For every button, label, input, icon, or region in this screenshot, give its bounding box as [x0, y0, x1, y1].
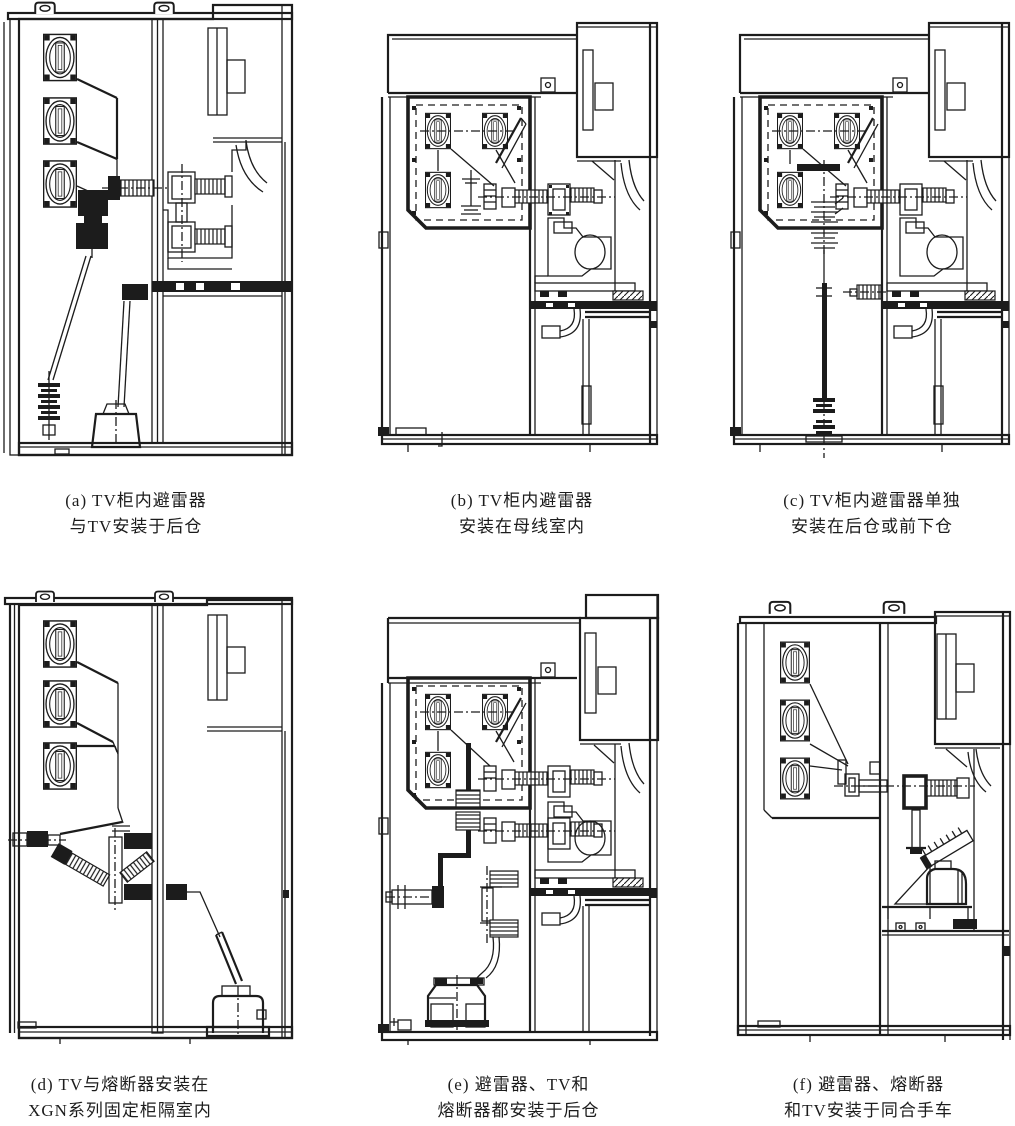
voltage-transformer-icon: [92, 400, 140, 447]
cabinet-frame: [738, 602, 1010, 1040]
voltage-transformer-icon: [895, 861, 966, 904]
caption-a-line2: 与TV安装于后仓: [0, 514, 272, 540]
cable-compartment: [382, 309, 657, 452]
caption-b-line2: 安装在母线室内: [380, 514, 664, 540]
cabinet-frame: [378, 595, 658, 1036]
figure-a: [0, 0, 345, 470]
figure-d: [0, 590, 310, 1050]
contact-assembly-upper: [478, 766, 615, 797]
breaker-mechanism: [76, 140, 292, 300]
circuit-breaker: [882, 97, 1009, 435]
lifting-lug-icon: [36, 592, 54, 603]
lifting-lug-icon: [154, 3, 174, 14]
arrester-feeder: [806, 160, 888, 458]
bushing-icon: [777, 172, 802, 207]
caption-d-line1: (d) TV与熔断器安装在: [0, 1072, 240, 1098]
caption-c-line2: 安装在后仓或前下仓: [730, 514, 1014, 540]
busbar-compartment: [408, 97, 530, 228]
figure-c: [730, 20, 1015, 465]
cable-termination: [187, 892, 269, 1036]
contact-assembly: [478, 184, 615, 215]
handcart-platform: [882, 907, 1009, 935]
contact-box: [904, 776, 926, 808]
caption-e-line1: (e) 避雷器、TV和: [380, 1072, 657, 1098]
conductor-bar: [822, 283, 827, 398]
circuit-breaker: [530, 97, 657, 435]
circuit-breaker: [530, 678, 657, 1032]
caption-c: (c) TV柜内避雷器单独 安装在后仓或前下仓: [730, 488, 1014, 540]
lifting-lug-icon: [155, 592, 173, 603]
cabinet-drawing-c: [730, 20, 1015, 460]
compartment-floor: [152, 281, 292, 292]
busbar-compartment: [760, 97, 882, 228]
diagram-page: (a) TV柜内避雷器 与TV安装于后仓 (b) TV柜内避雷器 安装在母线室内…: [0, 0, 1015, 1126]
bushing-icon: [425, 752, 450, 787]
bushings-group: [44, 34, 117, 207]
bushing-icon: [781, 758, 810, 799]
figure-f: [730, 594, 1015, 1051]
lifting-lug-icon: [35, 3, 55, 14]
bushing-icon: [44, 681, 77, 727]
caption-b: (b) TV柜内避雷器 安装在母线室内: [380, 488, 664, 540]
bushing-icon: [425, 172, 450, 207]
instrument-compartment: [929, 23, 1009, 157]
voltage-transformer-icon: [425, 975, 489, 1030]
caption-f-line1: (f) 避雷器、熔断器: [730, 1072, 1007, 1098]
caption-d-line2: XGN系列固定柜隔室内: [0, 1098, 240, 1124]
lifting-lug-icon: [770, 602, 791, 614]
tv-spout-icon: [78, 190, 108, 216]
cable-compartment: [382, 896, 657, 1045]
fuse-link-icon: [120, 852, 154, 882]
caption-c-line1: (c) TV柜内避雷器单独: [730, 488, 1014, 514]
lifting-lug-icon: [884, 602, 905, 614]
surge-arrester-icon: [38, 371, 60, 440]
bushing-icon: [781, 642, 810, 683]
bushing-icon: [44, 161, 77, 207]
caption-f: (f) 避雷器、熔断器 和TV安装于同合手车: [730, 1072, 1007, 1124]
caption-d: (d) TV与熔断器安装在 XGN系列固定柜隔室内: [0, 1072, 240, 1124]
cabinet-drawing-f: [730, 594, 1015, 1046]
bushing-icon: [44, 621, 77, 667]
cabinet-drawing-b: [378, 20, 663, 460]
fuse-icon: [51, 843, 111, 887]
figure-b: [378, 20, 663, 465]
cabinet-drawing-e: [378, 590, 663, 1045]
contact-assembly-lower: [478, 818, 615, 849]
cabinet-drawing-a: [0, 0, 345, 465]
bushing-icon: [44, 743, 77, 789]
instrument-compartment: [580, 618, 658, 740]
cable-compartment: [734, 309, 1009, 452]
duct-curve: [236, 145, 263, 192]
contact-assembly: [830, 184, 967, 215]
cabinet-drawing-d: [0, 590, 310, 1045]
base: [738, 1021, 1010, 1042]
caption-b-line1: (b) TV柜内避雷器: [380, 488, 664, 514]
tv-fuse-mechanism: [8, 808, 187, 912]
bushing-icon: [781, 700, 810, 741]
caption-e-line2: 熔断器都安装于后仓: [380, 1098, 657, 1124]
breaker-body: [548, 218, 611, 276]
caption-e: (e) 避雷器、TV和 熔断器都安装于后仓: [380, 1072, 657, 1124]
instrument-compartment: [577, 23, 657, 157]
bushings-group: [44, 621, 118, 808]
figure-e: [378, 590, 663, 1050]
caption-a-line1: (a) TV柜内避雷器: [0, 488, 272, 514]
caption-a: (a) TV柜内避雷器 与TV安装于后仓: [0, 488, 272, 540]
disconnector-bar: [797, 164, 840, 171]
bushing-icon: [44, 98, 77, 144]
bushing-icon: [44, 34, 77, 80]
caption-f-line2: 和TV安装于同合手车: [730, 1098, 1007, 1124]
handcart-assembly: [834, 749, 991, 854]
